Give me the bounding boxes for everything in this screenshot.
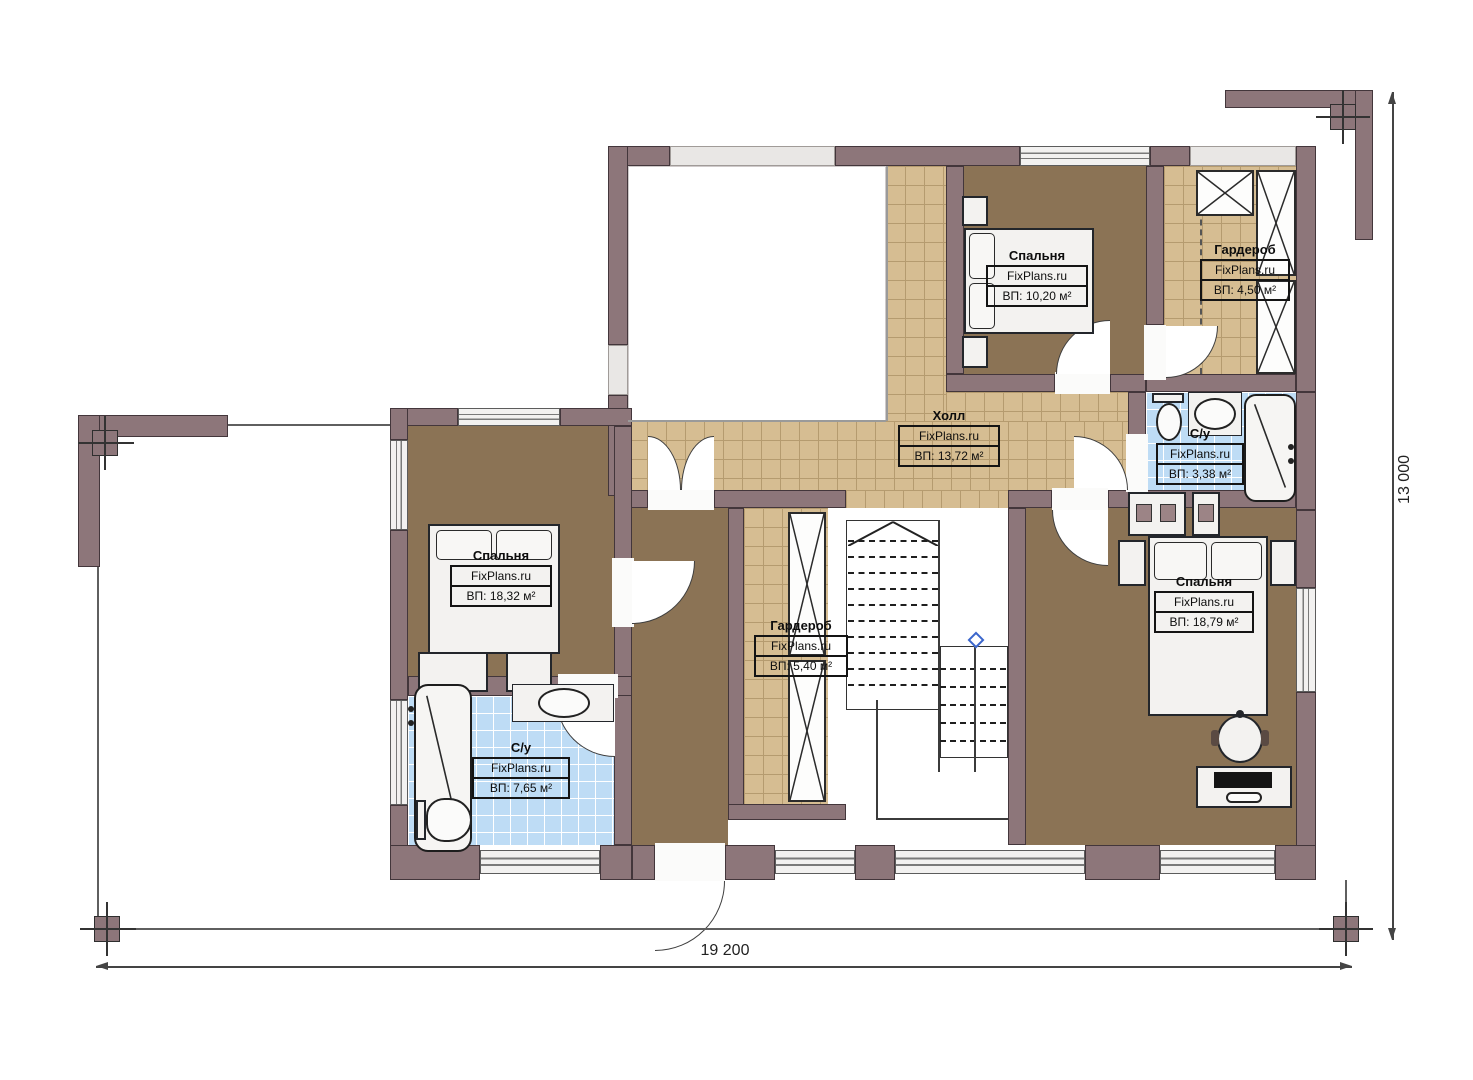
dimension-arrow-icon (96, 962, 108, 970)
room-area: ВП: 7,65 м² (474, 777, 568, 797)
dimension-line-right (1392, 92, 1394, 940)
wall-segment (560, 408, 632, 426)
dimension-line-bottom (96, 966, 1352, 968)
window-bedroom-left-west (390, 440, 408, 530)
stair-tread (848, 588, 938, 590)
room-area: ВП: 13,72 м² (900, 445, 998, 465)
door-gap (1144, 325, 1166, 380)
dimension-arrow-icon (1388, 92, 1396, 104)
dimension-arrow-icon (1340, 962, 1352, 970)
room-area: ВП: 18,32 м² (452, 585, 550, 605)
wall-segment (1008, 508, 1026, 845)
wall-segment (608, 146, 628, 345)
dresser-drawer (1160, 504, 1176, 522)
stair-landing-floor (846, 490, 1008, 508)
window-bedroom-top (1020, 146, 1150, 166)
wall-segment (725, 845, 775, 880)
wall-segment (855, 845, 895, 880)
dimension-arrow-icon (1388, 928, 1396, 940)
room-name: Спальня (986, 248, 1088, 263)
stairs (846, 508, 1008, 845)
wall-segment (1110, 374, 1146, 392)
wall-segment (1008, 490, 1052, 508)
watermark: FixPlans.ru (1202, 261, 1288, 279)
door-gap (612, 558, 634, 627)
wall-segment (1296, 510, 1316, 588)
column-axis (106, 902, 108, 956)
room-label-hall: Холл FixPlans.ru ВП: 13,72 м² (898, 408, 1000, 467)
stair-tread (848, 620, 938, 622)
wall-segment (728, 804, 846, 820)
watermark: FixPlans.ru (900, 427, 998, 445)
room-name: Гардероб (1200, 242, 1290, 257)
terrace-line (97, 567, 99, 920)
room-area: ВП: 5,40 м² (756, 655, 846, 675)
room-area: ВП: 3,38 м² (1158, 463, 1242, 483)
door-gap (655, 843, 725, 882)
room-name: Спальня (1154, 574, 1254, 589)
monitor (1214, 772, 1272, 788)
wall-segment (1296, 146, 1316, 392)
stair-tread (848, 668, 938, 670)
wall-segment (1128, 392, 1146, 436)
wall-segment (728, 508, 744, 820)
watermark: FixPlans.ru (1156, 593, 1252, 611)
room-name: С/у (1156, 426, 1244, 441)
toilet-bowl (426, 798, 472, 842)
stair-tread (940, 722, 1006, 724)
room-name: Холл (898, 408, 1000, 423)
stair-tread (940, 668, 1006, 670)
column-axis (78, 442, 134, 444)
watermark: FixPlans.ru (988, 267, 1086, 285)
wall-segment (1150, 146, 1190, 166)
room-label-bedroom-left: Спальня FixPlans.ru ВП: 18,32 м² (450, 548, 552, 607)
wall-segment (1296, 392, 1316, 510)
stair-tread (848, 652, 938, 654)
sink-basin (538, 688, 590, 718)
stair-rail (974, 646, 976, 772)
armchair (1217, 715, 1263, 763)
stair-tread (940, 686, 1006, 688)
wardrobe-cabinet-icon (788, 660, 826, 802)
stair-tread (848, 556, 938, 558)
stair-tread (848, 540, 938, 542)
wall-segment (616, 676, 632, 696)
watermark: FixPlans.ru (1158, 445, 1242, 463)
floor-plan: Спальня FixPlans.ru ВП: 10,20 м² Гардеро… (0, 0, 1473, 1080)
wardrobe-cabinet-icon (1196, 170, 1254, 216)
wall-segment (835, 146, 1020, 166)
door-gap (1055, 372, 1110, 394)
hall-corridor-floor (886, 166, 946, 421)
watermark: FixPlans.ru (474, 759, 568, 777)
watermark: FixPlans.ru (756, 637, 846, 655)
stair-tread (940, 740, 1006, 742)
column-axis (1342, 90, 1344, 144)
terrace-line (120, 928, 1333, 930)
armchair-knob (1236, 710, 1244, 718)
faucet-icon (408, 706, 414, 712)
dimension-height-label: 13 000 (1396, 455, 1414, 504)
door-gap (648, 488, 714, 510)
wall-segment (1085, 845, 1160, 880)
armchair-arm (1211, 730, 1219, 746)
door-gap (1052, 488, 1108, 510)
door-arc-balcony (655, 881, 725, 951)
room-name: С/у (472, 740, 570, 755)
window-south-3 (1160, 850, 1275, 874)
keyboard (1226, 792, 1262, 803)
void-room-floor (628, 166, 886, 421)
wall-segment (390, 408, 408, 440)
wall-segment (632, 845, 655, 880)
opening-west (608, 345, 628, 395)
faucet-icon (1288, 444, 1294, 450)
wall-segment (614, 426, 632, 560)
window-south-2 (895, 850, 1085, 874)
wall-segment (600, 845, 632, 880)
stair-rail (876, 818, 1008, 820)
wall-segment (714, 490, 846, 508)
window-bedroom-right-east (1296, 588, 1316, 692)
window-bedroom-left-north (458, 408, 560, 426)
window-bathroom-left-west (390, 700, 408, 805)
room-label-bedroom-right: Спальня FixPlans.ru ВП: 18,79 м² (1154, 574, 1254, 633)
column-axis (104, 416, 106, 470)
room-area: ВП: 18,79 м² (1156, 611, 1252, 631)
dresser-drawer (1136, 504, 1152, 522)
dresser-drawer (1198, 504, 1214, 522)
window-south-1 (775, 850, 855, 874)
wall-segment (390, 530, 408, 700)
nightstand (1118, 540, 1146, 586)
stair-tread (940, 704, 1006, 706)
nightstand (962, 336, 988, 368)
terrace-line (228, 424, 390, 426)
column-axis (1345, 902, 1347, 956)
faucet-icon (1288, 458, 1294, 464)
stair-tread (848, 572, 938, 574)
opening-above-void (670, 146, 835, 166)
room-name: Гардероб (754, 618, 848, 633)
room-label-bathroom-right: С/у FixPlans.ru ВП: 3,38 м² (1156, 426, 1244, 485)
room-area: ВП: 10,20 м² (988, 285, 1086, 305)
nightstand (1270, 540, 1296, 586)
room-name: Спальня (450, 548, 552, 563)
watermark: FixPlans.ru (452, 567, 550, 585)
stair-tread (848, 684, 938, 686)
wall-segment (1146, 166, 1164, 325)
armchair-arm (1261, 730, 1269, 746)
nightstand (962, 196, 988, 226)
stair-rail (938, 520, 940, 772)
room-area: ВП: 4,50 м² (1202, 279, 1288, 299)
terrace-parapet (1355, 90, 1373, 240)
toilet-tank (1152, 393, 1184, 403)
room-label-bathroom-left: С/у FixPlans.ru ВП: 7,65 м² (472, 740, 570, 799)
toilet-tank (416, 800, 426, 840)
column-axis (80, 928, 136, 930)
void-edge-line (886, 166, 888, 421)
room-label-wardrobe-center: Гардероб FixPlans.ru ВП: 5,40 м² (754, 618, 848, 677)
stair-tread (848, 604, 938, 606)
room-label-wardrobe-top: Гардероб FixPlans.ru ВП: 4,50 м² (1200, 242, 1290, 301)
opening-top-right (1190, 146, 1296, 166)
dimension-width-label: 19 200 (660, 942, 790, 960)
wall-segment (614, 690, 632, 845)
stair-arrow-icon (848, 520, 938, 546)
stair-tread (848, 636, 938, 638)
wall-segment (946, 374, 1055, 392)
window-bathroom-left-south (480, 850, 600, 874)
hall-edge-line (628, 420, 886, 422)
stair-rail (876, 700, 878, 820)
faucet-icon (408, 720, 414, 726)
door-gap (1126, 434, 1148, 492)
room-label-bedroom-top: Спальня FixPlans.ru ВП: 10,20 м² (986, 248, 1088, 307)
inner-corridor-floor (632, 508, 728, 845)
wall-segment (1275, 845, 1316, 880)
